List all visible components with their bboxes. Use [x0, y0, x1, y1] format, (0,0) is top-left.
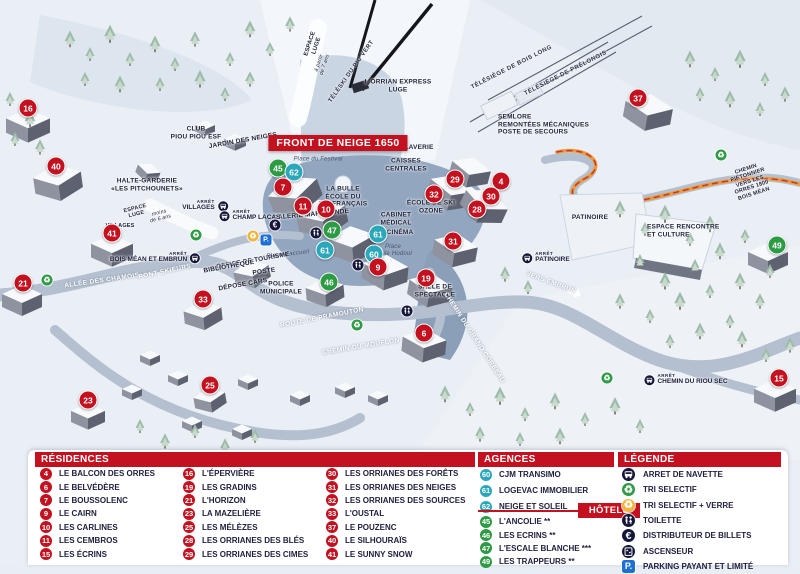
- residence-label: LA MAZELIÈRE: [202, 509, 261, 518]
- bus-icon: [622, 468, 635, 481]
- legende-item-recycle-glass: ♻TRI SELECTIF + VERRE: [622, 498, 753, 513]
- bus-icon: [220, 211, 230, 221]
- marker-number-badge: 40: [326, 535, 338, 547]
- map-marker-25[interactable]: 25: [201, 376, 220, 395]
- residence-label: LES MÉLÈZES: [202, 523, 258, 532]
- hotel-label: L'ANCOLIE **: [499, 517, 550, 526]
- residence-item-10: 10LES CARLINES: [40, 521, 155, 534]
- residence-label: LES ORRIANES DES SOURCES: [345, 496, 465, 505]
- map-marker-33[interactable]: 33: [194, 290, 213, 309]
- residence-item-40: 40LE SILHOURAÏS: [326, 534, 465, 547]
- recycle-green-icon: ♻: [191, 230, 202, 241]
- marker-number-badge: 47: [480, 542, 492, 554]
- map-marker-49[interactable]: 49: [768, 236, 787, 255]
- toilet-icon: [311, 228, 322, 239]
- map-service-icon: ♻: [716, 150, 727, 161]
- residence-item-16: 16L'ÉPERVIÈRE: [183, 467, 308, 480]
- residence-item-32: 32LES ORRIANES DES SOURCES: [326, 494, 465, 507]
- recycle-green-icon: ♻: [622, 483, 635, 496]
- agency-label: LOGEVAC IMMOBILIER: [499, 486, 588, 495]
- residences-column-1: 4LE BALCON DES ORRES6LE BELVÉDÈRE7LE BOU…: [40, 467, 155, 561]
- hotel-label: LES ECRINS **: [499, 531, 555, 540]
- hotel-item-47: 47L'ESCALE BLANCHE ***: [480, 542, 591, 555]
- residence-item-25: 25LES MÉLÈZES: [183, 521, 308, 534]
- bus-stop-label: CHEMIN DU RIOU SEC: [657, 379, 727, 386]
- toilet-icon: [353, 260, 364, 271]
- residence-label: LE BOUSSOLENC: [59, 496, 128, 505]
- legende-label: ARRET DE NAVETTE: [643, 470, 723, 479]
- marker-number-badge: 21: [183, 494, 195, 506]
- residence-item-15: 15LES ÉCRINS: [40, 547, 155, 560]
- residence-label: LES ORRIANES DES NEIGES: [345, 483, 456, 492]
- agencies-column: 60CJM TRANSIMO61LOGEVAC IMMOBILIER62NEIG…: [480, 467, 588, 515]
- hotel-item-46: 46LES ECRINS **: [480, 528, 591, 541]
- bus-icon: [644, 375, 654, 385]
- residence-label: LES ORRIANES DES BLÉS: [202, 536, 304, 545]
- marker-number-badge: 29: [183, 548, 195, 560]
- residence-item-29: 29LES ORRIANES DES CIMES: [183, 547, 308, 560]
- residence-item-30: 30LES ORRIANES DES FORÊTS: [326, 467, 465, 480]
- bus-stop-label: PATINOIRE: [535, 257, 569, 264]
- map-service-icon: ♻: [191, 230, 202, 241]
- map-marker-40[interactable]: 40: [47, 157, 66, 176]
- hotel-item-45: 45L'ANCOLIE **: [480, 515, 591, 528]
- recycle-green-icon: ♻: [716, 150, 727, 161]
- marker-number-badge: 7: [40, 494, 52, 506]
- hotel-label: LES TRAPPEURS **: [499, 557, 575, 566]
- bus-icon: [190, 253, 200, 263]
- map-marker-31[interactable]: 31: [444, 232, 463, 251]
- marker-number-badge: 28: [183, 535, 195, 547]
- legende-label: TOILETTE: [643, 516, 682, 525]
- residence-item-41: 41LE SUNNY SNOW: [326, 547, 465, 560]
- euro-icon: €: [622, 529, 635, 542]
- map-marker-47[interactable]: 47: [323, 221, 342, 240]
- residence-label: LES CEMBROS: [59, 536, 118, 545]
- residences-header: RÉSIDENCES: [35, 452, 475, 467]
- residence-item-31: 31LES ORRIANES DES NEIGES: [326, 480, 465, 493]
- marker-number-badge: 41: [326, 548, 338, 560]
- map-marker-15[interactable]: 15: [770, 369, 789, 388]
- map-marker-37[interactable]: 37: [629, 89, 648, 108]
- map-marker-23[interactable]: 23: [79, 391, 98, 410]
- marker-number-badge: 16: [183, 468, 195, 480]
- legende-header: LÉGENDE: [618, 452, 781, 467]
- marker-number-badge: 49: [480, 556, 492, 568]
- marker-number-badge: 23: [183, 508, 195, 520]
- legende-item-toilet: TOILETTE: [622, 513, 753, 528]
- front-de-neige-banner: FRONT DE NEIGE 1650: [268, 135, 407, 151]
- marker-number-badge: 25: [183, 521, 195, 533]
- legende-label: DISTRIBUTEUR DE BILLETS: [643, 531, 751, 540]
- residence-item-37: 37LE POUZENC: [326, 521, 465, 534]
- hotel-item-49: 49LES TRAPPEURS **: [480, 555, 591, 568]
- map-marker-19[interactable]: 19: [417, 269, 436, 288]
- bus-stop-patinoire: ARRÊTPATINOIRE: [522, 252, 569, 264]
- hotels-column: 45L'ANCOLIE **46LES ECRINS **47L'ESCALE …: [480, 515, 591, 569]
- residence-label: LE SILHOURAÏS: [345, 536, 407, 545]
- legende-item-elevator: ASCENSEUR: [622, 543, 753, 558]
- hotel-label: L'ESCALE BLANCHE ***: [499, 544, 591, 553]
- residence-item-9: 9LE CAIRN: [40, 507, 155, 520]
- marker-number-badge: 6: [40, 481, 52, 493]
- map-service-icon: €: [270, 220, 281, 231]
- residence-item-4: 4LE BALCON DES ORRES: [40, 467, 155, 480]
- residence-label: LES ORRIANES DES FORÊTS: [345, 469, 458, 478]
- marker-number-badge: 32: [326, 494, 338, 506]
- legende-label: PARKING PAYANT ET LIMITÉ: [643, 562, 753, 571]
- residence-item-7: 7LE BOUSSOLENC: [40, 494, 155, 507]
- map-marker-32[interactable]: 32: [425, 185, 444, 204]
- legende-label: ASCENSEUR: [643, 547, 693, 556]
- residence-label: LE POUZENC: [345, 523, 397, 532]
- residence-label: L'ÉPERVIÈRE: [202, 469, 254, 478]
- residence-label: LES ÉCRINS: [59, 550, 107, 559]
- bus-stop-label: BOIS MÉAN ET EMBRUN: [110, 257, 187, 264]
- residences-column-2: 16L'ÉPERVIÈRE19LES GRADINS21L'HORIZON23L…: [183, 467, 308, 561]
- residence-label: L'OUSTAL: [345, 509, 384, 518]
- agency-label: CJM TRANSIMO: [499, 470, 561, 479]
- map-service-icon: [353, 260, 364, 271]
- map-service-icon: ♻: [602, 373, 613, 384]
- legende-item-euro: €DISTRIBUTEUR DE BILLETS: [622, 528, 753, 543]
- map-service-icon: [402, 306, 413, 317]
- residence-item-21: 21L'HORIZON: [183, 494, 308, 507]
- map-marker-28[interactable]: 28: [468, 200, 487, 219]
- residence-item-23: 23LA MAZELIÈRE: [183, 507, 308, 520]
- toilet-icon: [622, 514, 635, 527]
- marker-number-badge: 4: [40, 468, 52, 480]
- map-service-icon: P.: [261, 235, 272, 246]
- marker-number-badge: 33: [326, 508, 338, 520]
- map-marker-16[interactable]: 16: [19, 99, 38, 118]
- map-marker-9[interactable]: 9: [369, 258, 388, 277]
- residence-label: LE CAIRN: [59, 509, 97, 518]
- residence-label: LES ORRIANES DES CIMES: [202, 550, 308, 559]
- residence-label: L'HORIZON: [202, 496, 246, 505]
- marker-number-badge: 15: [40, 548, 52, 560]
- marker-number-badge: 11: [40, 535, 52, 547]
- marker-number-badge: 45: [480, 516, 492, 528]
- legende-item-bus: ARRET DE NAVETTE: [622, 467, 753, 482]
- residence-item-19: 19LES GRADINS: [183, 480, 308, 493]
- residence-item-28: 28LES ORRIANES DES BLÉS: [183, 534, 308, 547]
- legende-label: TRI SELECTIF: [643, 485, 697, 494]
- toilet-icon: [402, 306, 413, 317]
- euro-icon: €: [270, 220, 281, 231]
- residence-item-11: 11LES CEMBROS: [40, 534, 155, 547]
- residence-label: LE BALCON DES ORRES: [59, 469, 155, 478]
- residences-column-3: 30LES ORRIANES DES FORÊTS31LES ORRIANES …: [326, 467, 465, 561]
- recycle-glass-icon: ♻: [622, 499, 635, 512]
- map-marker-29[interactable]: 29: [446, 170, 465, 189]
- marker-number-badge: 19: [183, 481, 195, 493]
- marker-number-badge: 10: [40, 521, 52, 533]
- bus-icon: [522, 253, 532, 263]
- legende-item-parking: P.PARKING PAYANT ET LIMITÉ: [622, 559, 753, 574]
- map-marker-61[interactable]: 61: [316, 241, 335, 260]
- map-service-icon: ♻: [42, 275, 53, 286]
- map-marker-61[interactable]: 61: [369, 225, 388, 244]
- map-marker-21[interactable]: 21: [14, 274, 33, 293]
- legende-item-recycle-green: ♻TRI SELECTIF: [622, 482, 753, 497]
- parking-icon: P.: [261, 235, 272, 246]
- marker-number-badge: 9: [40, 508, 52, 520]
- legende-column: ARRET DE NAVETTE♻TRI SELECTIF♻TRI SELECT…: [622, 467, 753, 574]
- parking-icon: P.: [622, 560, 635, 573]
- marker-number-badge: 30: [326, 468, 338, 480]
- agency-item-60: 60CJM TRANSIMO: [480, 467, 588, 483]
- bus-stop-bois-m-an-et-embrun: ARRÊTBOIS MÉAN ET EMBRUN: [110, 252, 200, 264]
- map-marker-46[interactable]: 46: [320, 273, 339, 292]
- residence-item-6: 6LE BELVÉDÈRE: [40, 480, 155, 493]
- bus-stop-chemin-du-riou-sec: ARRÊTCHEMIN DU RIOU SEC: [644, 374, 727, 386]
- residence-label: LE BELVÉDÈRE: [59, 483, 120, 492]
- map-marker-41[interactable]: 41: [103, 224, 122, 243]
- recycle-green-icon: ♻: [42, 275, 53, 286]
- residence-label: LES GRADINS: [202, 483, 257, 492]
- marker-number-badge: 46: [480, 529, 492, 541]
- marker-number-badge: 31: [326, 481, 338, 493]
- map-marker-10[interactable]: 10: [317, 200, 336, 219]
- residence-item-33: 33L'OUSTAL: [326, 507, 465, 520]
- residence-label: LE SUNNY SNOW: [345, 550, 412, 559]
- recycle-green-icon: ♻: [352, 320, 363, 331]
- agency-item-62: 62NEIGE ET SOLEIL: [480, 499, 588, 515]
- residence-label: LES CARLINES: [59, 523, 118, 532]
- map-marker-11[interactable]: 11: [294, 197, 313, 216]
- marker-number-badge: 37: [326, 521, 338, 533]
- marker-number-badge: 60: [480, 469, 492, 481]
- map-service-icon: ♻: [248, 231, 259, 242]
- map-service-icon: ♻: [352, 320, 363, 331]
- recycle-green-icon: ♻: [602, 373, 613, 384]
- agencies-header: AGENCES IMMOBILIÈRES: [478, 452, 614, 467]
- legend-panel: RÉSIDENCES AGENCES IMMOBILIÈRES LÉGENDE …: [28, 450, 788, 565]
- map-marker-6[interactable]: 6: [415, 324, 434, 343]
- bus-stop-label: VILLAGES: [182, 205, 215, 212]
- agency-item-61: 61LOGEVAC IMMOBILIER: [480, 483, 588, 499]
- recycle-glass-icon: ♻: [248, 231, 259, 242]
- legende-label: TRI SELECTIF + VERRE: [643, 501, 733, 510]
- elevator-icon: [622, 545, 635, 558]
- resort-map-screen: 1640412133232545627111047616160946196313…: [0, 0, 800, 565]
- map-service-icon: [311, 228, 322, 239]
- marker-number-badge: 61: [480, 485, 492, 497]
- map-marker-7[interactable]: 7: [274, 178, 293, 197]
